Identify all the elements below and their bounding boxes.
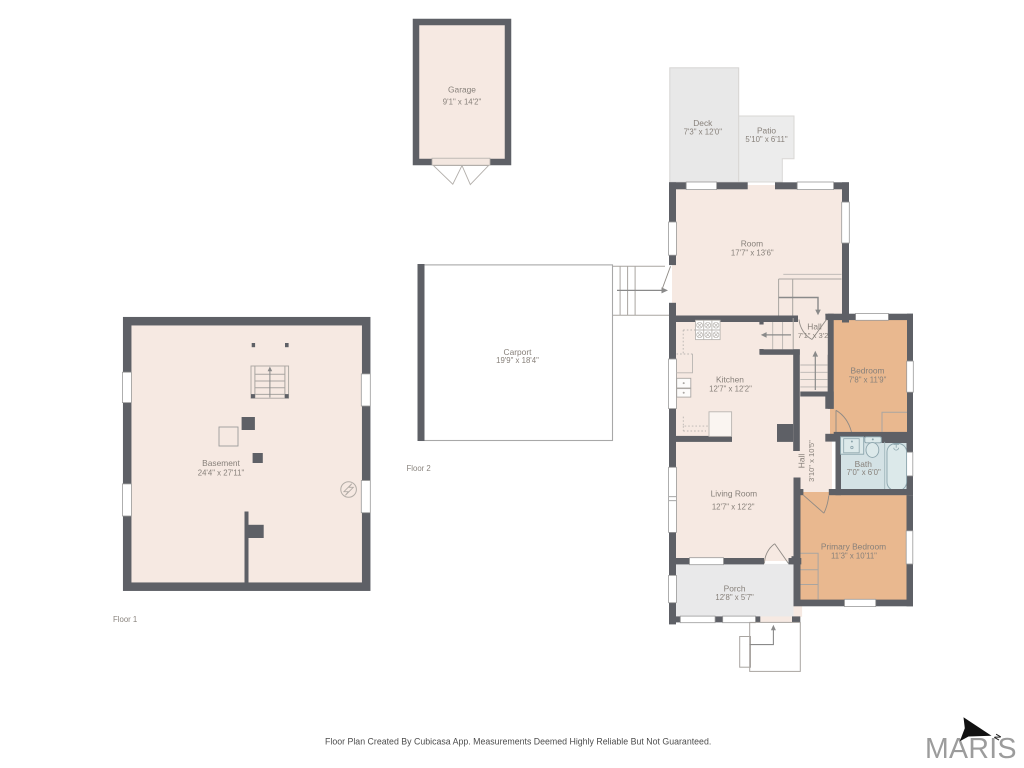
svg-text:Living Room: Living Room bbox=[711, 489, 758, 499]
svg-text:7'3" x 12'0": 7'3" x 12'0" bbox=[684, 127, 723, 136]
svg-text:Bedroom: Bedroom bbox=[851, 366, 885, 376]
svg-text:Basement: Basement bbox=[202, 458, 240, 468]
svg-text:Hall: Hall bbox=[807, 322, 822, 332]
svg-text:7'8" x 11'9": 7'8" x 11'9" bbox=[849, 375, 887, 384]
svg-text:7'0" x 6'0": 7'0" x 6'0" bbox=[847, 468, 881, 477]
svg-text:Room: Room bbox=[741, 239, 763, 249]
svg-text:5'10" x 6'11": 5'10" x 6'11" bbox=[745, 135, 787, 144]
svg-text:Hall: Hall bbox=[797, 454, 807, 469]
svg-text:Floor 2: Floor 2 bbox=[407, 464, 431, 473]
svg-text:19'9" x 18'4": 19'9" x 18'4" bbox=[496, 356, 539, 365]
svg-text:24'4" x 27'11": 24'4" x 27'11" bbox=[198, 468, 245, 477]
svg-text:7'1" x 3'2": 7'1" x 3'2" bbox=[798, 331, 832, 340]
svg-text:3'10" x 10'5": 3'10" x 10'5" bbox=[807, 440, 816, 482]
svg-text:9'1" x 14'2": 9'1" x 14'2" bbox=[443, 98, 482, 107]
svg-text:Patio: Patio bbox=[757, 125, 776, 135]
svg-text:12'7" x 12'2": 12'7" x 12'2" bbox=[712, 502, 755, 511]
svg-text:17'7" x 13'6": 17'7" x 13'6" bbox=[731, 248, 774, 257]
svg-text:Kitchen: Kitchen bbox=[716, 375, 744, 385]
svg-text:11'3" x 10'11": 11'3" x 10'11" bbox=[831, 551, 877, 560]
svg-text:MARIS: MARIS bbox=[925, 733, 1017, 765]
svg-text:Primary Bedroom: Primary Bedroom bbox=[821, 542, 886, 552]
svg-text:Garage: Garage bbox=[448, 85, 476, 95]
svg-text:Floor Plan Created By Cubicasa: Floor Plan Created By Cubicasa App. Meas… bbox=[325, 737, 711, 747]
svg-text:12'8" x 5'7": 12'8" x 5'7" bbox=[715, 593, 754, 602]
svg-text:Floor 1: Floor 1 bbox=[113, 615, 137, 624]
svg-text:12'7" x 12'2": 12'7" x 12'2" bbox=[709, 384, 752, 393]
